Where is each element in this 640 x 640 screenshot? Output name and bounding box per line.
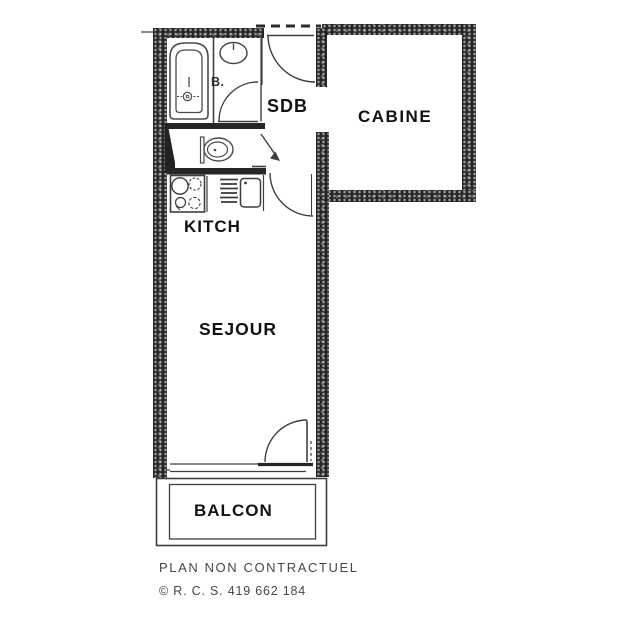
wall-kitchen-top — [167, 168, 266, 175]
stove-icon — [171, 176, 208, 213]
bathtub-icon — [170, 43, 208, 119]
footer: PLAN NON CONTRACTUEL © R. C. S. 419 662 … — [159, 560, 579, 598]
plan-linework — [0, 0, 640, 640]
bath-annotation: B. — [211, 75, 225, 89]
room-label-kitch: KITCH — [184, 217, 241, 237]
registration-text: © R. C. S. 419 662 184 — [159, 584, 579, 598]
floor-plan: SDB CABINE KITCH SEJOUR BALCON B. PLAN N… — [0, 0, 640, 640]
balcony-door — [265, 420, 311, 462]
washbasin-icon — [220, 43, 247, 64]
wall-bathroom-bottom — [167, 123, 265, 129]
room-label-balcon: BALCON — [194, 501, 273, 521]
hall-door — [270, 173, 313, 216]
toilet-icon — [201, 137, 234, 163]
toilet-door — [252, 134, 280, 167]
disclaimer-text: PLAN NON CONTRACTUEL — [159, 560, 579, 575]
kitchen-sink-icon — [241, 175, 264, 211]
drainer-rack-icon — [220, 180, 238, 203]
sejour-window — [166, 464, 313, 472]
room-label-cabine: CABINE — [358, 107, 432, 127]
room-label-sejour: SEJOUR — [199, 319, 277, 340]
room-label-sdb: SDB — [267, 96, 308, 117]
sdb-door — [267, 35, 315, 82]
